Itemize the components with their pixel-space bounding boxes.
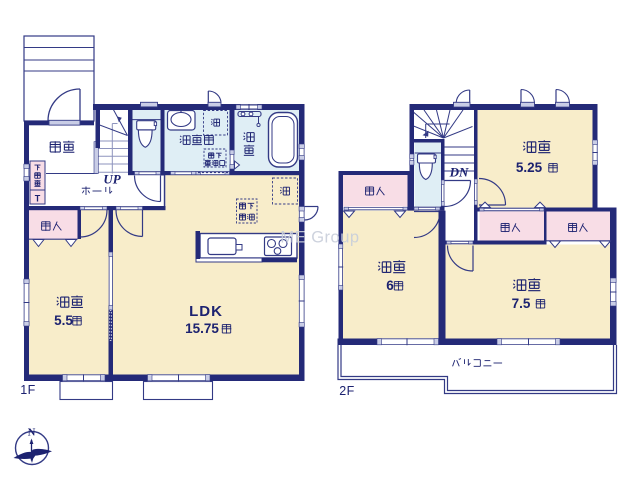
svg-text:5.5: 5.5 [54, 313, 73, 328]
svg-text:2F: 2F [339, 384, 355, 398]
svg-text:7.5: 7.5 [512, 296, 531, 311]
svg-text:DN: DN [449, 165, 469, 180]
svg-text:T: T [35, 194, 41, 204]
svg-text:5.25: 5.25 [516, 160, 543, 175]
svg-text:6: 6 [386, 278, 394, 293]
svg-text:ME Group: ME Group [280, 229, 359, 247]
svg-text:N: N [28, 428, 36, 439]
svg-text:UP: UP [103, 172, 121, 187]
svg-text:1F: 1F [20, 383, 36, 397]
svg-text:15.75: 15.75 [185, 321, 219, 336]
svg-text:LDK: LDK [189, 303, 223, 320]
